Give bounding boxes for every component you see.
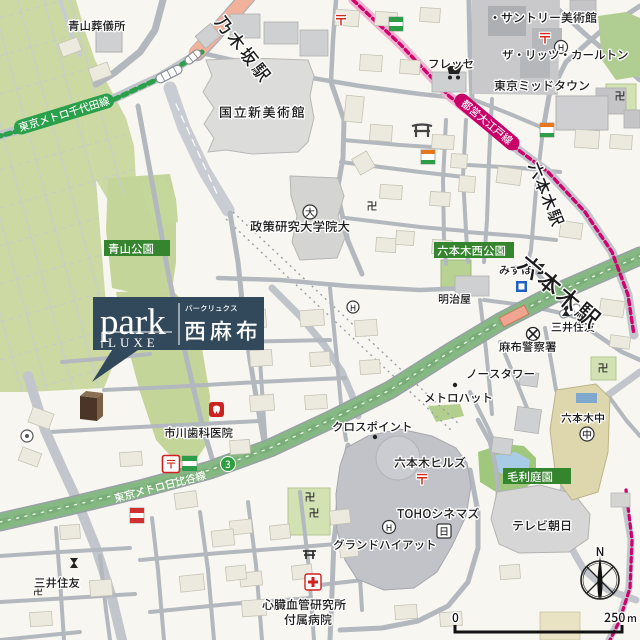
svg-text:LUXE: LUXE [108,335,159,350]
